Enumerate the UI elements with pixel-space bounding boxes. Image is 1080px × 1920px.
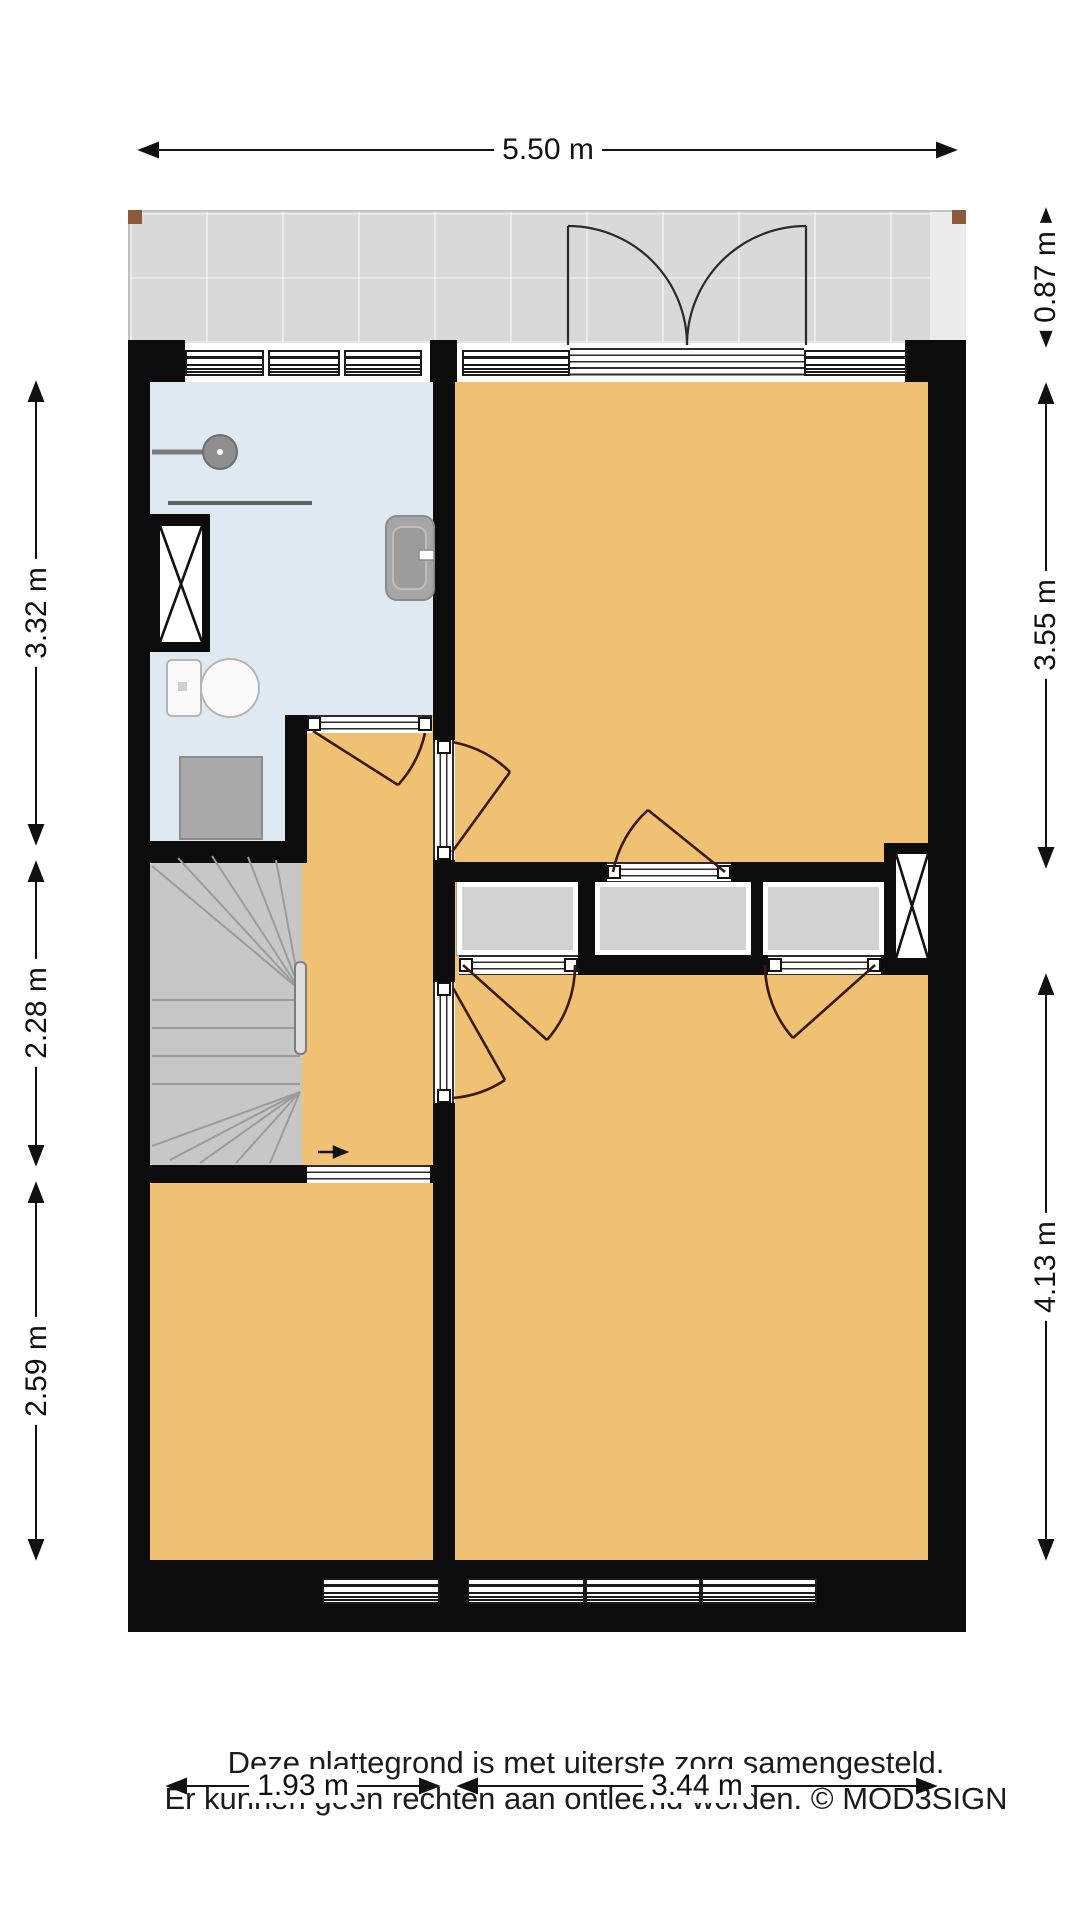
window xyxy=(344,350,422,376)
door-hinge xyxy=(564,958,578,972)
window xyxy=(322,1578,440,1604)
door-hinge xyxy=(437,982,451,996)
window-pane xyxy=(464,356,568,370)
disclaimer: Deze plattegrond is met uiterste zorg sa… xyxy=(46,1745,1080,1817)
balcony-post-right xyxy=(952,210,966,224)
window-pane xyxy=(187,356,262,370)
wall xyxy=(430,1165,455,1183)
wall xyxy=(128,340,185,382)
door-hinge xyxy=(307,717,321,731)
door-bathroom xyxy=(307,715,432,733)
closet-3 xyxy=(763,882,884,955)
door-hinge xyxy=(717,865,731,879)
wall xyxy=(433,382,455,740)
door-hinge xyxy=(459,958,473,972)
dim-top-width: 5.50 m xyxy=(494,133,602,167)
door-closet-3 xyxy=(768,955,881,975)
door-closet-2 xyxy=(607,862,731,882)
balcony-right-strip xyxy=(930,212,966,343)
door-hinge xyxy=(418,717,432,731)
window-pane xyxy=(346,356,420,370)
door-landing-bedroom-right xyxy=(433,982,455,1103)
wall xyxy=(285,715,307,855)
wall xyxy=(751,880,763,957)
closet-2 xyxy=(595,882,751,955)
window xyxy=(268,350,340,376)
window-pane xyxy=(587,1584,699,1598)
window-pane xyxy=(806,356,905,370)
wall xyxy=(455,862,607,882)
dim-balcony-depth: 0.87 m xyxy=(1029,223,1063,331)
dim-bottom-left: 1.93 m xyxy=(249,1769,357,1803)
duct-shaft-left-inner xyxy=(160,526,202,642)
staircase xyxy=(150,855,302,1165)
window xyxy=(467,1578,585,1604)
dim-bottom-right: 3.44 m xyxy=(643,1769,751,1803)
wall xyxy=(578,880,595,957)
door-hinge xyxy=(437,740,451,754)
wall xyxy=(128,340,150,1632)
window-pane xyxy=(469,1584,583,1598)
duct-shaft-right-inner xyxy=(896,854,928,958)
disclaimer-line1: Deze plattegrond is met uiterste zorg sa… xyxy=(46,1745,1080,1781)
wall xyxy=(150,1165,307,1183)
wall xyxy=(150,841,307,863)
window xyxy=(701,1578,817,1604)
dim-left-middle: 2.28 m xyxy=(20,959,54,1067)
balcony-door-sill xyxy=(570,348,804,376)
door-hinge xyxy=(768,958,782,972)
wall xyxy=(430,340,457,382)
door-hinge xyxy=(867,958,881,972)
window-pane xyxy=(270,356,338,370)
door-hinge xyxy=(437,1089,451,1103)
washing-machine xyxy=(179,756,263,840)
door-hinge xyxy=(437,846,451,860)
window-pane xyxy=(324,1584,438,1598)
dim-left-upper: 3.32 m xyxy=(20,559,54,667)
wall xyxy=(433,860,455,982)
dim-left-lower: 2.59 m xyxy=(20,1317,54,1425)
window xyxy=(462,350,570,376)
window-pane xyxy=(703,1584,815,1598)
window xyxy=(585,1578,701,1604)
wall xyxy=(905,340,966,382)
window xyxy=(804,350,907,376)
door-hinge xyxy=(607,865,621,879)
floorplan: Balkon Badkamer Slaapkamer Slaapkamer Sl… xyxy=(0,0,1080,1920)
balcony-post-left xyxy=(128,210,142,224)
wall xyxy=(578,955,768,975)
door-landing-bedroom-left xyxy=(307,1165,430,1183)
disclaimer-line2: Er kunnen geen rechten aan ontleend word… xyxy=(46,1781,1080,1817)
dim-right-lower: 4.13 m xyxy=(1029,1213,1063,1321)
balcony-floor xyxy=(128,210,966,343)
window xyxy=(185,350,264,376)
door-landing-bedroom-top xyxy=(433,740,455,860)
dim-right-upper: 3.55 m xyxy=(1029,571,1063,679)
closet-1 xyxy=(457,882,578,955)
door-closet-1 xyxy=(459,955,578,975)
wall xyxy=(928,340,966,1632)
